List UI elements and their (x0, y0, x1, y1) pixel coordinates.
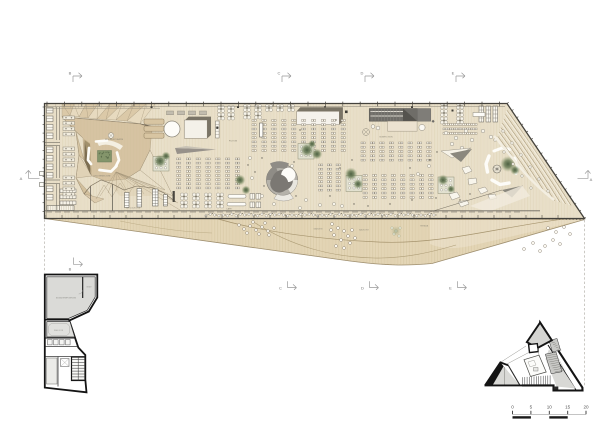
svg-text:BALKONY: BALKONY (359, 229, 369, 232)
svg-text:0: 0 (511, 404, 514, 409)
svg-text:BIG MULTIPURPOSE ROOM: BIG MULTIPURPOSE ROOM (56, 298, 77, 300)
svg-text:A: A (590, 177, 593, 182)
svg-text:E: E (449, 286, 452, 291)
svg-text:STUDY: STUDY (86, 287, 91, 289)
svg-text:E: E (452, 71, 455, 76)
svg-text:B: B (69, 267, 72, 272)
svg-text:10: 10 (547, 404, 553, 409)
svg-text:D: D (361, 286, 364, 291)
svg-text:C: C (279, 286, 282, 291)
svg-text:15: 15 (565, 404, 571, 409)
svg-text:B: B (69, 71, 72, 76)
svg-text:D: D (361, 71, 364, 76)
svg-text:GARDEN: GARDEN (314, 228, 323, 231)
svg-text:20: 20 (583, 404, 589, 409)
svg-text:DISCOVERING ZONE: DISCOVERING ZONE (94, 176, 112, 178)
svg-text:FICTION: FICTION (229, 141, 238, 143)
svg-text:A: A (20, 176, 23, 181)
svg-text:NONFICTION: NONFICTION (380, 137, 393, 139)
svg-text:KIDS COLLECTION: KIDS COLLECTION (126, 208, 141, 210)
svg-text:TERASA: TERASA (420, 225, 429, 228)
svg-text:KIDS RELAX THEATRE: KIDS RELAX THEATRE (105, 138, 124, 141)
svg-text:CAFE: CAFE (226, 208, 232, 211)
svg-text:C: C (278, 71, 281, 76)
svg-text:5: 5 (530, 404, 533, 409)
